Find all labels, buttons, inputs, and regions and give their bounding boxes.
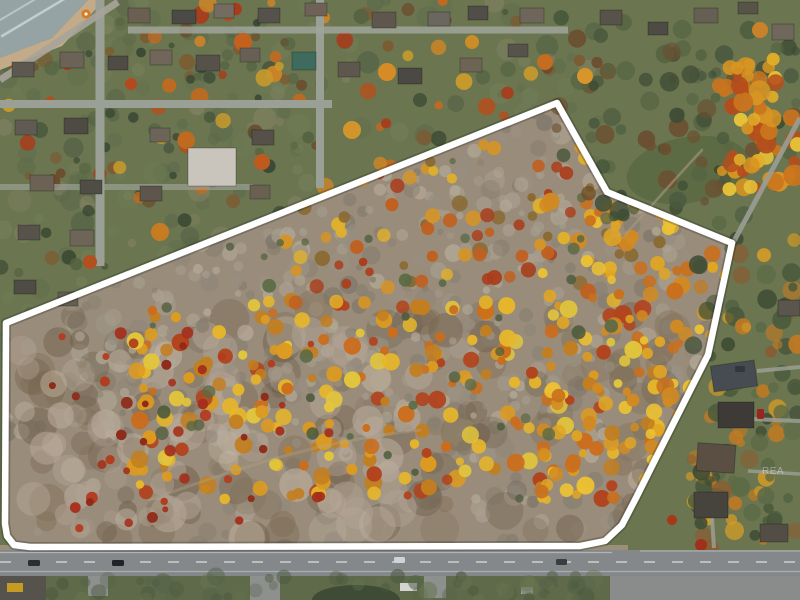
lawn-mottle-blob [76,276,87,287]
autumn-canopy-upper-blob [289,296,303,310]
lawn-mottle-blob [128,239,136,247]
bare-gray-trees-blob [404,393,413,402]
house-roof [508,44,528,57]
evergreen-sprinkle-blob [449,158,455,164]
yard-trees-blob [169,43,175,49]
roadside-grass-mottle-blob [524,575,535,586]
bare-gray-trees-blob [464,319,476,331]
yard-trees-blob [402,3,415,16]
evergreen-sprinkle-blob [226,243,234,251]
autumn-canopy-mid-blob [420,456,436,472]
yard-trees-blob [169,172,177,180]
bare-gray-trees-blob [510,391,518,399]
house-roof [150,50,172,65]
red-shrubs-blob [140,438,148,446]
autumn-canopy-upper-blob [487,141,501,155]
autumn-canopy-mid-blob [481,369,492,380]
roadside-trees-east-blob [689,255,708,274]
scrub-texture-blob [105,309,122,326]
evergreen-sprinkle-blob [408,401,417,410]
autumn-canopy-mid-blob [459,465,472,478]
autumn-canopy-mid-blob [129,338,139,348]
house-roof [252,130,274,145]
red-shrubs-blob [168,379,176,387]
autumn-canopy-mid-blob [344,337,361,354]
roadside-grass-mottle-blob [277,570,292,585]
yard-autumn-trees-blob [162,78,176,92]
roadside-trees-east-blob [733,266,751,284]
house-roof [108,56,128,70]
autumn-canopy-east-blob [538,268,548,278]
house-roof [694,8,718,23]
field-trees-blob [717,132,730,145]
autumn-canopy-mid-blob [294,312,310,328]
evergreen-sprinkle-blob [465,379,477,391]
autumn-canopy-upper-blob [399,261,408,270]
red-shrubs-blob [72,392,80,400]
field-trees-blob [686,93,698,105]
yard-trees-blob [45,251,59,265]
autumn-canopy-east-blob [607,491,620,504]
yard-autumn-trees-blob [256,69,273,86]
house-roof [18,225,40,240]
house-roof [600,10,622,25]
house-roof [12,62,34,77]
autumn-tree [465,35,479,49]
lawn-mottle-blob [135,81,150,96]
autumn-canopy-east-blob [646,404,662,420]
red-shrubs-blob [312,492,323,503]
lawn-mottle-blob [275,117,284,126]
scrub-texture-blob [530,140,546,156]
autumn-canopy-upper-blob [532,160,545,173]
bare-gray-trees-blob [97,391,104,398]
bare-gray-trees-blob [680,251,689,260]
lawn-mottle-blob [114,17,128,31]
red-shrubs-blob [161,498,168,505]
autumn-canopy-mid-blob [356,329,365,338]
autumn-tree [413,93,427,107]
autumn-canopy-mid-blob [253,481,268,496]
autumn-canopy-east-blob [581,255,593,267]
autumn-canopy-east-blob [539,198,554,213]
autumn-canopy-upper-blob [527,193,535,201]
roadside-grass-mottle-blob [91,584,106,599]
bare-gray-trees-blob [196,319,209,332]
dry-grass-patches-blob [30,432,63,465]
autumn-tree [151,223,169,241]
autumn-canopy-mid-blob [276,343,292,359]
autumn-canopy-mid-blob [634,367,645,378]
evergreen-sprinkle-blob [306,427,318,439]
autumn-canopy-mid-blob [443,407,458,422]
yard-trees-blob [500,62,515,77]
autumn-canopy-mid-blob [467,335,477,345]
bare-gray-trees-blob [293,378,308,393]
autumn-tree [695,539,707,551]
bare-gray-trees-blob [119,409,126,416]
autumn-tree [752,22,768,38]
house-roof [172,10,196,24]
autumn-canopy-mid-blob [261,315,270,324]
autumn-canopy-mid-blob [171,312,181,322]
autumn-canopy-upper-blob [447,173,457,183]
autumn-canopy-east-blob [634,261,647,274]
scrub-texture-blob [374,184,386,196]
autumn-canopy-mid-blob [220,494,231,505]
autumn-canopy-upper-blob [452,195,468,211]
house-roof [14,280,36,294]
bare-gray-trees-blob [381,412,392,423]
house-roof [520,8,544,23]
autumn-canopy-mid-blob [499,330,516,347]
bare-gray-trees-blob [152,287,158,293]
bare-gray-trees-blob [292,418,300,426]
evergreen-sprinkle-blob [186,421,196,431]
bare-gray-trees-blob [456,212,464,220]
autumn-canopy-upper-blob [385,198,398,211]
autumn-canopy-upper-blob [479,295,493,309]
autumn-canopy-east-blob [643,275,656,288]
scrub-texture-blob [493,167,504,178]
bare-gray-trees-blob [469,269,478,278]
autumn-canopy-mid-blob [425,345,442,362]
autumn-tree [83,255,97,269]
dry-grass-patches-blob [48,402,75,429]
field-trees-blob [712,216,727,231]
house-roof [250,185,270,199]
lawn-mottle-blob [298,174,316,192]
autumn-canopy-upper-blob [359,258,368,267]
autumn-canopy-mid-blob [442,475,453,486]
yard-trees-blob [302,132,314,144]
autumn-canopy-mid-blob [313,467,330,484]
yard-autumn-trees-blob [336,32,353,49]
autumn-canopy-mid-blob [421,479,437,495]
lawn-mottle-blob [144,162,167,185]
autumn-canopy-mid-blob [299,461,309,471]
house-roof [460,58,482,72]
yard-trees-blob [574,55,585,66]
house-roof [214,4,234,18]
corner-autumn-grove-blob [712,78,727,93]
red-shrubs-blob [259,445,267,453]
house-roof [30,175,54,191]
house-roof [128,8,150,23]
autumn-canopy-upper-blob [487,270,502,285]
evergreen-sprinkle-blob [262,279,276,293]
autumn-canopy-upper-blob [403,171,417,185]
roadside-grass-mottle-blob [265,574,274,583]
autumn-canopy-mid-blob [497,357,505,365]
autumn-canopy-mid-blob [409,363,423,377]
evergreen-sprinkle-blob [572,325,586,339]
autumn-canopy-mid-blob [422,448,432,458]
autumn-canopy-mid-blob [606,480,617,491]
house-roof [258,8,280,23]
yard-autumn-trees-blob [381,118,391,128]
autumn-canopy-mid-blob [369,337,378,346]
roadside-trees-east-blob [761,458,775,472]
bare-gray-trees-blob [120,388,129,397]
vehicle [394,557,405,563]
vehicle [28,560,40,566]
autumn-canopy-mid-blob [624,341,642,359]
bare-gray-trees-blob [317,207,328,218]
lawn-mottle-blob [522,88,539,105]
corner-autumn-grove-blob [743,157,759,173]
autumn-canopy-mid-blob [268,308,277,317]
autumn-canopy-east-blob [557,316,570,329]
roadside-trees-east-blob [755,322,766,333]
lawn-mottle-blob [292,164,303,175]
scrub-texture-blob [503,224,515,236]
bare-gray-trees-blob [458,392,471,405]
autumn-canopy-mid-blob [625,315,634,324]
autumn-canopy-mid-blob [326,391,343,408]
autumn-canopy-east-blob [625,437,637,449]
roadside-trees-east-blob [750,530,761,541]
red-shrubs-blob [261,393,269,401]
bare-gray-trees-blob [106,437,112,443]
bare-gray-trees-blob [539,405,548,414]
red-shrubs-blob [59,333,66,340]
beach-umbrella-center [84,12,87,15]
house-roof [468,6,488,20]
bare-gray-trees-blob [133,277,145,289]
evergreen-sprinkle-blob [202,385,215,398]
autumn-canopy-mid-blob [248,299,260,311]
bare-gray-trees-blob [428,194,442,208]
yard-trees-blob [204,112,215,123]
bare-gray-trees-blob [536,171,544,179]
bare-gray-trees-blob [347,224,361,238]
bare-gray-trees-blob [343,193,356,206]
aerial-photo: REA [0,0,800,600]
house-roof [305,3,327,16]
roadside-trees-east-blob [756,384,769,397]
yard-autumn-trees-blob [501,87,514,100]
autumn-canopy-mid-blob [261,419,275,433]
dry-grass-patches-blob [16,482,50,516]
yard-autumn-trees-blob [524,66,538,80]
red-shrubs-blob [162,506,168,512]
autumn-canopy-east-blob [549,467,564,482]
yard-autumn-trees-blob [194,36,205,47]
field-trees-blob [791,47,800,56]
red-shrubs-blob [324,428,333,437]
lawn-mottle-blob [76,32,96,52]
autumn-canopy-mid-blob [542,347,553,358]
bare-gray-trees-blob [554,216,562,224]
red-shrubs-blob [102,353,109,360]
yellow-equipment [7,583,23,592]
autumn-canopy-mid-blob [131,412,149,430]
autumn-canopy-upper-blob [415,275,428,288]
roadside-grass-mottle-blob [145,577,153,585]
field-trees-blob [700,197,709,206]
scrub-texture-blob [524,324,537,337]
roadside-trees-east-blob [757,265,776,284]
evergreen-sprinkle-blob [495,347,504,356]
evergreen-sprinkle-blob [384,451,392,459]
corner-autumn-grove-blob [731,77,748,94]
bare-gray-trees-blob [652,227,661,236]
red-shrubs-blob [98,460,107,469]
evergreen-sprinkle-blob [497,423,505,431]
bare-gray-trees-blob [470,412,476,418]
roadside-grass-mottle-blob [336,573,348,585]
yard-trees-blob [290,142,298,150]
corner-autumn-grove-blob [764,110,782,128]
autumn-canopy-mid-blob [428,391,446,409]
autumn-canopy-mid-blob [149,387,157,395]
yard-autumn-trees-blob [456,73,473,90]
dry-grass-patches-blob [15,402,35,422]
red-shrubs-blob [161,360,171,370]
autumn-canopy-mid-blob [404,491,412,499]
roadside-trees-east-blob [751,434,769,452]
yard-trees-blob [416,130,431,145]
field-trees-blob [640,92,659,111]
house-roof [372,12,396,28]
roadside-trees-east-blob [729,430,744,445]
autumn-canopy-east-blob [537,448,551,462]
autumn-canopy-upper-blob [421,222,434,235]
field-trees-blob [553,10,568,25]
autumn-canopy-mid-blob [346,464,357,475]
red-shrubs-blob [275,426,284,435]
roadside-grass-mottle-blob [581,576,596,591]
yard-trees-blob [85,50,92,57]
yard-trees-blob [282,37,295,50]
bare-gray-trees-blob [435,290,443,298]
driveway [751,419,800,421]
autumn-canopy-mid-blob [143,353,159,369]
autumn-canopy-upper-blob [473,248,487,262]
red-shrubs-blob [198,399,209,410]
bare-gray-trees-blob [320,265,328,273]
field-trees-blob [669,108,684,123]
autumn-canopy-upper-blob [339,211,351,223]
red-shrubs-blob [75,524,83,532]
evergreen-sprinkle-blob [261,253,268,260]
yard-autumn-trees-blob [478,98,495,115]
house-roof [140,186,162,201]
autumn-canopy-upper-blob [294,250,308,264]
house-roof [292,52,316,70]
autumn-canopy-mid-blob [399,472,412,485]
corner-autumn-grove-blob [734,154,746,166]
autumn-canopy-upper-blob [321,232,332,243]
lawn-mottle-blob [177,119,188,130]
yard-trees-blob [220,61,229,70]
autumn-canopy-mid-blob [268,319,284,335]
autumn-canopy-mid-blob [606,338,615,347]
autumn-canopy-mid-blob [175,443,188,456]
yard-autumn-trees-blob [113,161,126,174]
house-roof [188,148,236,186]
autumn-canopy-mid-blob [603,459,619,475]
bare-gray-trees-blob [411,332,421,342]
bare-gray-trees-blob [205,430,218,443]
autumn-canopy-mid-blob [449,305,458,314]
house-roof [80,180,102,194]
autumn-canopy-mid-blob [563,341,578,356]
field-trees-blob [617,209,630,222]
bare-gray-trees-blob [268,366,283,381]
evergreen-sprinkle-blob [577,235,585,243]
autumn-canopy-mid-blob [183,372,194,383]
field-trees-blob [594,28,608,42]
autumn-canopy-mid-blob [524,422,535,433]
evergreen-sprinkle-blob [542,428,555,441]
vehicle [112,560,124,566]
bare-gray-trees-blob [345,260,357,272]
scrub-texture-blob [198,523,216,541]
autumn-canopy-east-blob [585,215,596,226]
autumn-canopy-mid-blob [308,374,316,382]
roadside-trees-east-blob [742,323,752,333]
house-roof [648,22,668,35]
autumn-canopy-mid-blob [129,363,146,380]
autumn-canopy-east-blob [544,290,557,303]
roadside-trees-east-blob [783,493,793,503]
yard-autumn-trees-blob [431,40,446,55]
yard-autumn-trees-blob [403,50,414,61]
autumn-canopy-upper-blob [615,249,625,259]
evergreen-sprinkle-blob [449,371,461,383]
red-shrubs-blob [86,498,94,506]
bare-gray-trees-blob [235,290,241,296]
dry-grass-patches-blob [173,492,201,520]
evergreen-sprinkle-blob [155,427,168,440]
house-roof [772,24,794,40]
yard-trees-blob [354,9,369,24]
house-roof [738,2,758,14]
autumn-canopy-upper-blob [653,236,665,248]
lawn-mottle-blob [14,268,23,277]
red-shrubs-blob [49,382,56,389]
autumn-canopy-mid-blob [509,377,520,388]
house-roof [428,12,450,26]
autumn-canopy-mid-blob [560,300,578,318]
red-shrubs-blob [121,397,133,409]
field-trees-blob [557,148,571,162]
bare-gray-trees-blob [483,402,490,409]
autumn-canopy-east-blob [583,416,596,429]
autumn-canopy-mid-blob [480,325,492,337]
autumn-canopy-east-blob [546,361,556,371]
dry-grass-patches-blob [237,325,253,341]
house-roof [338,62,360,77]
bare-gray-trees-blob [565,262,576,273]
bare-gray-trees-blob [292,438,301,447]
autumn-canopy-east-blob [650,256,665,271]
field-trees-blob [638,130,656,148]
field-trees-blob [604,64,614,74]
autumn-canopy-mid-blob [367,487,381,501]
scrub-texture-blob [511,127,522,138]
autumn-canopy-mid-blob [380,397,389,406]
evergreen-sprinkle-blob [495,314,502,321]
evergreen-sprinkle-blob [515,494,523,502]
autumn-canopy-upper-blob [565,207,576,218]
house-roof [70,230,94,246]
red-shrubs-blob [248,495,255,502]
yard-trees-blob [128,112,139,123]
autumn-canopy-east-blob [588,293,597,302]
